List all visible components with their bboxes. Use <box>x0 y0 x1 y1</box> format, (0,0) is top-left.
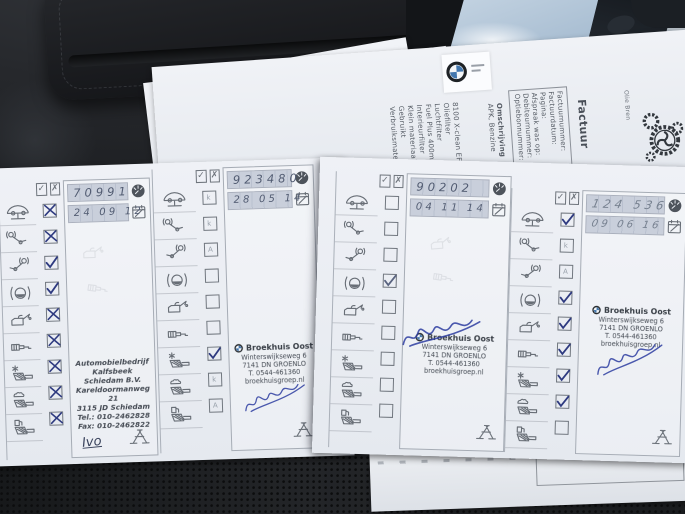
front-brake-icon <box>335 215 378 243</box>
invoice-title: Factuur <box>575 99 591 144</box>
service-checkbox <box>40 353 69 380</box>
service-checkbox <box>377 215 406 242</box>
mileage-field: 124 536 <box>586 194 683 215</box>
check-legend-box: ✓ <box>36 183 47 196</box>
fuel-filter-icon <box>330 404 373 432</box>
brake-fluid-icon <box>156 266 199 294</box>
service-checkbox <box>37 249 66 276</box>
date-field: 04 11 14 <box>410 198 507 219</box>
stamp-panel: 124 53609 06 16Broekhuis OostWinterswijk… <box>575 190 685 457</box>
date-handwritten: 24 09 12 <box>74 205 145 221</box>
engine-oil-icon <box>3 306 40 334</box>
service-checkbox <box>553 206 582 233</box>
service-checkbox <box>373 345 402 372</box>
mileage-handwritten: 70991 <box>73 184 130 200</box>
front-brake-icon <box>0 225 37 253</box>
air-filter-icon <box>506 394 549 422</box>
speedometer-icon <box>667 198 683 214</box>
cross-legend-box: ✗ <box>393 175 404 188</box>
service-entry-column: ✓✗kkAkA92348028 05 14Broekhuis OostWinte… <box>152 164 323 453</box>
date-field: 09 06 16 <box>585 215 682 236</box>
service-checkbox <box>198 288 227 315</box>
car-on-lift-icon <box>153 185 196 213</box>
air-filter-icon <box>5 387 42 415</box>
gear-logo <box>638 106 685 171</box>
date-handwritten: 04 11 14 <box>416 201 487 217</box>
check-legend-box: ✓ <box>555 191 566 204</box>
front-brake-icon <box>154 212 197 240</box>
engine-oil-icon <box>508 313 551 341</box>
service-checkbox <box>550 310 579 337</box>
printed-box-letter: A <box>208 245 213 253</box>
service-checkbox: A <box>202 392 231 419</box>
mileage-field: 923480 <box>227 169 311 190</box>
service-checkbox: k <box>201 366 230 393</box>
service-checkbox: k <box>196 210 225 237</box>
mileage-handwritten: 124 536 <box>591 196 669 212</box>
service-checkbox <box>35 197 64 224</box>
fuel-filter-icon <box>505 421 548 449</box>
fine-print-line <box>471 64 484 67</box>
air-filter-icon <box>330 377 373 405</box>
service-checkbox <box>372 397 401 424</box>
service-checkbox <box>197 262 226 289</box>
car-on-lift-icon <box>511 205 554 233</box>
printed-box-letter: k <box>564 241 568 249</box>
printed-box-letter: k <box>207 219 211 227</box>
service-checkbox <box>547 414 576 441</box>
calendar-icon <box>666 219 682 235</box>
cross-legend-box: ✗ <box>568 192 579 205</box>
mileage-handwritten: 923480 <box>233 171 301 187</box>
date-handwritten: 28 05 14 <box>233 192 304 208</box>
stamp-panel: 7099124 09 12AutomobielbedrijfKalfsbeek … <box>63 178 159 459</box>
service-checkbox: A <box>197 236 226 263</box>
spark-plug-icon <box>157 320 200 348</box>
photo-scene: Bedankt voor uw ver Btw-code 21.0 1 8100… <box>0 0 685 514</box>
mileage-handwritten: 90202 <box>416 180 473 196</box>
speedometer-icon <box>491 181 507 197</box>
spark-plug-icon <box>4 333 41 361</box>
invoice-side-note: Olie Bren <box>622 90 632 136</box>
car-on-lift-icon <box>0 198 36 226</box>
rear-brake-icon <box>155 239 198 267</box>
stamp-panel: 92348028 05 14Broekhuis OostWinterswijks… <box>222 164 322 451</box>
service-checkbox <box>38 275 67 302</box>
brake-fluid-icon <box>333 269 376 297</box>
cabin-filter-icon <box>507 367 550 395</box>
print-through-ghost <box>78 242 109 268</box>
service-entry-column: ✓✗7099124 09 12AutomobielbedrijfKalfsbee… <box>0 178 158 461</box>
printed-box-letter: A <box>563 267 568 275</box>
service-checkbox <box>42 405 71 432</box>
cabin-filter-icon <box>331 350 374 378</box>
air-filter-icon <box>159 374 202 402</box>
service-checkbox <box>375 267 404 294</box>
service-checkbox <box>41 379 70 406</box>
bmw-logo-card <box>441 52 492 93</box>
printed-box-letter: k <box>206 193 210 201</box>
service-booklet-right-page: ✓✗9020204 11 14Broekhuis OostWinterswijk… <box>312 157 685 463</box>
service-checkbox <box>376 241 405 268</box>
engine-oil-icon <box>156 293 199 321</box>
print-through-ghost <box>82 276 115 305</box>
service-items-icon-column <box>504 188 554 453</box>
spark-plug-icon <box>332 323 375 351</box>
service-checkbox <box>550 336 579 363</box>
service-checkbox <box>549 362 578 389</box>
service-checkbox <box>551 284 580 311</box>
service-entry-column: ✓✗kA124 53609 06 16Broekhuis OostWinters… <box>504 188 685 457</box>
service-checkbox: k <box>195 184 224 211</box>
cross-legend-box: ✗ <box>209 169 220 182</box>
garage-stamp: AutomobielbedrijfKalfsbeek Schiedam B.V.… <box>69 356 156 431</box>
service-booklet-left-page: ✓✗7099124 09 12AutomobielbedrijfKalfsbee… <box>0 157 355 466</box>
fuel-filter-icon <box>6 414 43 442</box>
fine-print-line <box>472 69 481 72</box>
rear-brake-icon <box>1 252 38 280</box>
engine-oil-icon <box>333 296 376 324</box>
service-checkbox: k <box>552 232 581 259</box>
mileage-field: 90202 <box>410 177 507 198</box>
printed-box-letter: k <box>212 375 216 383</box>
mileage-field: 70991 <box>67 182 147 202</box>
date-handwritten: 09 06 16 <box>590 217 663 233</box>
calendar-icon <box>491 202 507 218</box>
service-entry-column: ✓✗9020204 11 14Broekhuis OostWinterswijk… <box>328 171 512 452</box>
speedometer-icon <box>130 183 146 199</box>
jack-stand-icon <box>648 427 676 453</box>
stamp-panel: 9020204 11 14Broekhuis OostWinterswijkse… <box>399 173 512 452</box>
service-checkbox <box>200 340 229 367</box>
service-checkbox <box>378 189 407 216</box>
jack-stand-icon <box>126 427 154 453</box>
check-legend-box: ✓ <box>196 170 207 183</box>
service-checkbox <box>36 223 65 250</box>
brake-fluid-icon <box>2 279 39 307</box>
service-checkbox <box>548 388 577 415</box>
print-through-ghost <box>427 265 460 294</box>
printed-box-letter: A <box>213 401 218 409</box>
service-checkbox <box>39 327 68 354</box>
rear-brake-icon <box>510 259 553 287</box>
spark-plug-icon <box>507 340 550 368</box>
service-checkbox: A <box>552 258 581 285</box>
front-brake-icon <box>510 232 553 260</box>
cross-legend-box: ✗ <box>49 182 60 195</box>
service-checkbox <box>373 371 402 398</box>
cabin-filter-icon <box>4 360 41 388</box>
date-field: 24 09 12 <box>68 203 148 223</box>
check-legend-box: ✓ <box>379 174 390 187</box>
service-checkbox <box>39 301 68 328</box>
jack-stand-icon <box>472 422 500 448</box>
service-items-icon-column <box>328 171 379 448</box>
brake-fluid-icon <box>509 286 552 314</box>
rear-brake-icon <box>334 242 377 270</box>
fuel-filter-icon <box>160 401 203 429</box>
date-field: 28 05 14 <box>227 190 311 211</box>
service-checkbox <box>199 314 228 341</box>
signature: Ivo <box>81 433 112 451</box>
service-checkbox <box>375 293 404 320</box>
car-on-lift-icon <box>336 188 379 216</box>
cabin-filter-icon <box>158 347 201 375</box>
print-through-ghost <box>425 232 457 259</box>
